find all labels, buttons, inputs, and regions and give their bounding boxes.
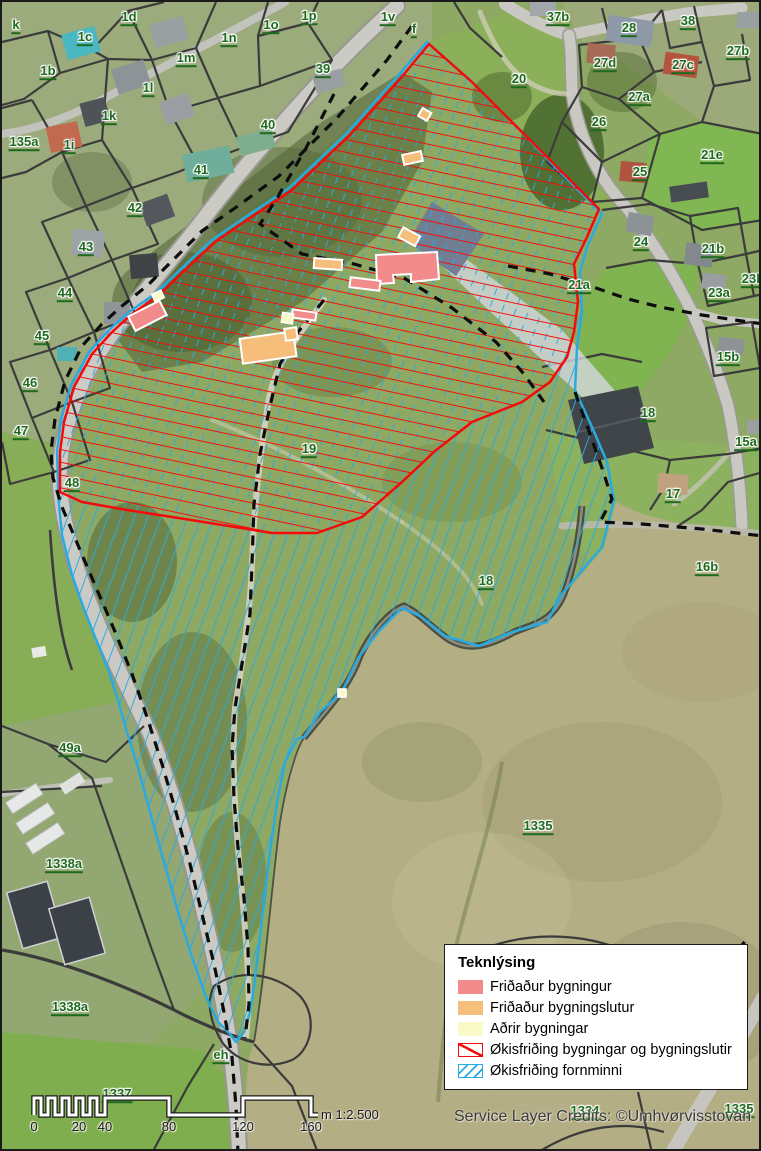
legend-item-label: Friðaður bygningur [490,979,612,995]
scale-tick-label: 160 [300,1119,322,1134]
scale-tick-label: 20 [72,1119,86,1134]
legend-title: Teknlýsing [458,954,737,971]
scale-tick-label: 40 [98,1119,112,1134]
legend-swatch-fill [458,1001,483,1015]
legend-item: Friðaður bygningur [458,976,737,997]
map-canvas: k1c1d1n1o1p1vf37b283827d27c27b1b1m392027… [0,0,761,1151]
protected-building-part [314,258,343,270]
legend-swatch-fill [458,1022,483,1036]
legend-swatch-hatch-single [458,1043,483,1057]
legend-item: Friðaður bygningslutur [458,997,737,1018]
legend-item: Aðrir bygningar [458,1018,737,1039]
legend-item: Økisfriðing bygningar og bygningslutir [458,1039,737,1060]
legend-items: Friðaður bygningurFriðaður bygningslutur… [458,976,737,1081]
legend-item-label: Aðrir bygningar [490,1021,588,1037]
scale-tick-label: 0 [30,1119,37,1134]
scale-tick-label: 80 [162,1119,176,1134]
scale-tick-label: 120 [232,1119,254,1134]
service-credits: Service Layer Credits: ©Umhvørvisstovan [454,1108,751,1126]
legend-item-label: Friðaður bygningslutur [490,1000,634,1016]
legend-item: Økisfriðing fornminni [458,1060,737,1081]
legend-panel: Teknlýsing Friðaður bygningurFriðaður by… [444,944,748,1090]
protected-building-part [284,327,298,341]
other-building [338,689,346,697]
legend-item-label: Økisfriðing fornminni [490,1063,622,1079]
legend-swatch-fill [458,980,483,994]
legend-swatch-hatch-double [458,1064,483,1078]
scale-ratio: m 1:2.500 [321,1107,379,1122]
other-building [281,312,293,323]
legend-item-label: Økisfriðing bygningar og bygningslutir [490,1042,732,1058]
